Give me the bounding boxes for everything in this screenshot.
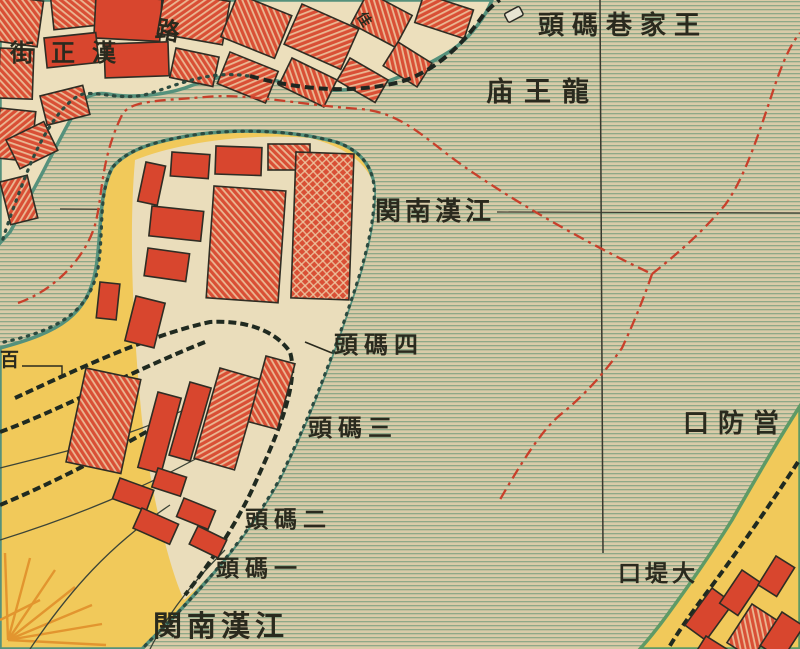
map-canvas <box>0 0 800 649</box>
label-wangjiaxiang-wharf: 頭碼巷家王 <box>538 13 708 39</box>
label-wharf-1: 頭碼一 <box>216 558 303 581</box>
label-road-char: 路 <box>154 17 182 45</box>
label-longwang-temple: 庙王龍 <box>486 79 600 106</box>
label-wharf-2: 頭碼二 <box>245 509 332 532</box>
label-jianghan-nanguan-south: 関南漢江 <box>153 612 289 641</box>
label-yingfangkou: 口防営 <box>683 411 788 437</box>
label-wharf-3: 頭碼三 <box>308 416 398 440</box>
label-bai-char: 百 <box>0 351 19 370</box>
label-hanzheng-street: 街正漢 <box>10 41 133 65</box>
label-jianghan-nanguan-river: 関南漢江 <box>375 199 495 225</box>
label-dadikou: 口堤大 <box>618 563 699 586</box>
label-wharf-4: 頭碼四 <box>334 333 424 357</box>
historic-wuhan-map: 頭碼巷家王 庙王龍 関南漢江 頭碼四 頭碼三 頭碼二 頭碼一 関南漢江 口防営 … <box>0 0 800 649</box>
